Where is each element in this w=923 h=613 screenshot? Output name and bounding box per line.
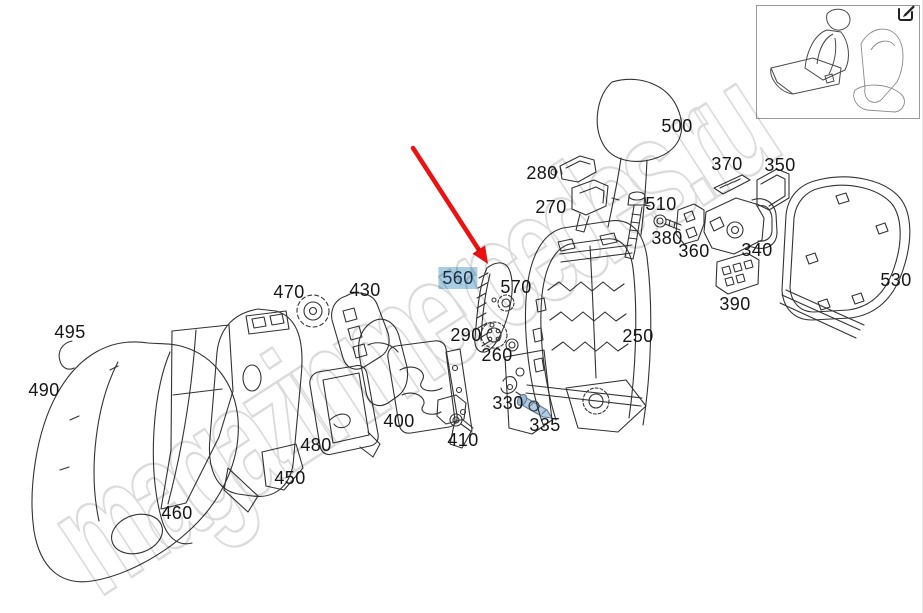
part-callout-530[interactable]: 530	[880, 271, 911, 289]
part-callout-490[interactable]: 490	[28, 381, 59, 399]
part-callout-560[interactable]: 560	[438, 267, 477, 289]
part-callout-430[interactable]: 430	[349, 281, 380, 299]
part-callout-495[interactable]: 495	[54, 323, 85, 341]
part-callout-510[interactable]: 510	[645, 195, 676, 213]
part-callout-500[interactable]: 500	[661, 117, 692, 135]
seat-overview-thumbnail[interactable]	[756, 5, 920, 119]
edit-external-icon[interactable]	[896, 2, 916, 22]
part-callout-460[interactable]: 460	[161, 504, 192, 522]
part-callout-340[interactable]: 340	[741, 241, 772, 259]
part-callout-400[interactable]: 400	[383, 412, 414, 430]
part-callout-570[interactable]: 570	[500, 278, 531, 296]
part-callout-350[interactable]: 350	[764, 156, 795, 174]
part-callout-470[interactable]: 470	[273, 283, 304, 301]
seat-overview-drawing	[757, 6, 919, 118]
part-callout-335[interactable]: 335	[529, 416, 560, 434]
part-callout-290[interactable]: 290	[450, 326, 481, 344]
part-callout-330[interactable]: 330	[492, 394, 523, 412]
part-callout-370[interactable]: 370	[711, 155, 742, 173]
part-callout-280[interactable]: 280	[526, 164, 557, 182]
parts-diagram-page: magazinmercedes.ru 500280270510380360370…	[0, 0, 923, 613]
part-callout-390[interactable]: 390	[719, 295, 750, 313]
part-callout-250[interactable]: 250	[622, 327, 653, 345]
seat-front-outline	[771, 9, 850, 94]
seat-rear-ghost-outline	[854, 29, 905, 112]
part-callout-450[interactable]: 450	[274, 469, 305, 487]
part-callout-270[interactable]: 270	[535, 198, 566, 216]
part-callout-360[interactable]: 360	[678, 242, 709, 260]
part-callout-410[interactable]: 410	[447, 431, 478, 449]
part-callout-480[interactable]: 480	[300, 436, 331, 454]
part-callout-260[interactable]: 260	[481, 346, 512, 364]
